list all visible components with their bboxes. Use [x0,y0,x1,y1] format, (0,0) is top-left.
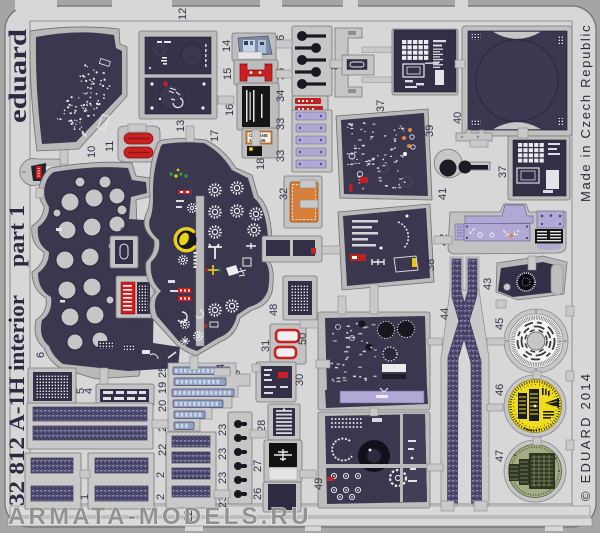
svg-text:32: 32 [278,188,290,200]
svg-text:eduard: eduard [5,29,32,123]
svg-text:1: 1 [79,494,91,500]
svg-text:37: 37 [497,166,509,178]
svg-text:12: 12 [177,8,189,20]
svg-text:48: 48 [268,304,280,316]
svg-text:ARMATA-MODELS.RU: ARMATA-MODELS.RU [8,503,312,530]
svg-text:44: 44 [439,308,451,320]
svg-text:43: 43 [482,278,494,290]
svg-text:26: 26 [252,488,264,500]
svg-text:37: 37 [375,100,387,112]
svg-text:2: 2 [155,472,167,478]
svg-text:14: 14 [221,40,233,52]
svg-text:16: 16 [224,104,236,116]
svg-text:41: 41 [437,188,449,200]
svg-text:11: 11 [104,141,116,152]
svg-text:23: 23 [217,448,229,460]
svg-text:17: 17 [209,130,221,142]
svg-text:33: 33 [275,150,287,162]
svg-text:34: 34 [275,90,287,102]
svg-text:13: 13 [175,120,187,132]
svg-text:7: 7 [134,322,146,328]
svg-text:15: 15 [222,68,234,80]
svg-text:47: 47 [494,450,506,462]
svg-text:23: 23 [217,424,229,436]
svg-text:27: 27 [252,460,264,472]
svg-text:18: 18 [255,158,267,170]
svg-text:45: 45 [494,318,506,330]
svg-text:33: 33 [275,118,287,130]
svg-text:22: 22 [157,444,169,456]
svg-text:32 812: 32 812 [4,437,29,506]
svg-text:part 1: part 1 [4,205,29,267]
svg-text:4: 4 [83,388,95,394]
svg-text:31: 31 [260,340,272,352]
svg-text:39: 39 [424,125,436,137]
svg-text:25: 25 [157,366,169,378]
svg-text:© EDUARD 2014: © EDUARD 2014 [578,372,593,501]
svg-text:6: 6 [35,352,47,358]
svg-text:50: 50 [297,333,309,345]
svg-text:A-1H interior: A-1H interior [4,295,29,431]
svg-text:8: 8 [119,227,131,233]
svg-text:49: 49 [313,478,325,490]
svg-text:2: 2 [155,494,167,500]
svg-text:46: 46 [494,384,506,396]
svg-text:40: 40 [452,112,464,124]
svg-text:10: 10 [86,146,98,158]
svg-text:Made in Czech Republic: Made in Czech Republic [578,24,593,202]
svg-text:38: 38 [425,259,437,271]
svg-text:20: 20 [157,400,169,412]
svg-text:19: 19 [157,382,169,394]
svg-text:30: 30 [294,374,306,386]
svg-text:23: 23 [217,472,229,484]
